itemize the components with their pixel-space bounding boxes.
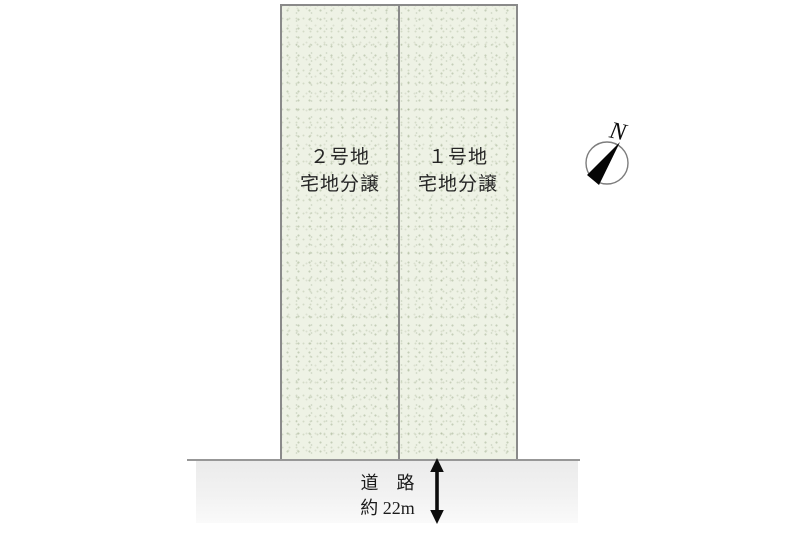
parcel-2-type: 宅地分譲 [282,171,398,198]
parcel-2-label: ２号地 宅地分譲 [282,144,398,198]
parcel-1: １号地 宅地分譲 [400,6,516,459]
parcels-block: ２号地 宅地分譲 １号地 宅地分譲 [280,4,518,461]
compass-n-label: N [606,117,630,146]
parcel-1-label: １号地 宅地分譲 [400,144,516,198]
parcel-1-type: 宅地分譲 [400,171,516,198]
compass-north-icon: N [572,112,644,196]
parcel-1-name: １号地 [400,144,516,171]
lot-layout-diagram: ２号地 宅地分譲 １号地 宅地分譲 道 路 約 22m N [0,0,801,534]
parcel-2: ２号地 宅地分譲 [282,6,400,459]
parcel-2-name: ２号地 [282,144,398,171]
road-width-arrow-icon [425,458,449,524]
